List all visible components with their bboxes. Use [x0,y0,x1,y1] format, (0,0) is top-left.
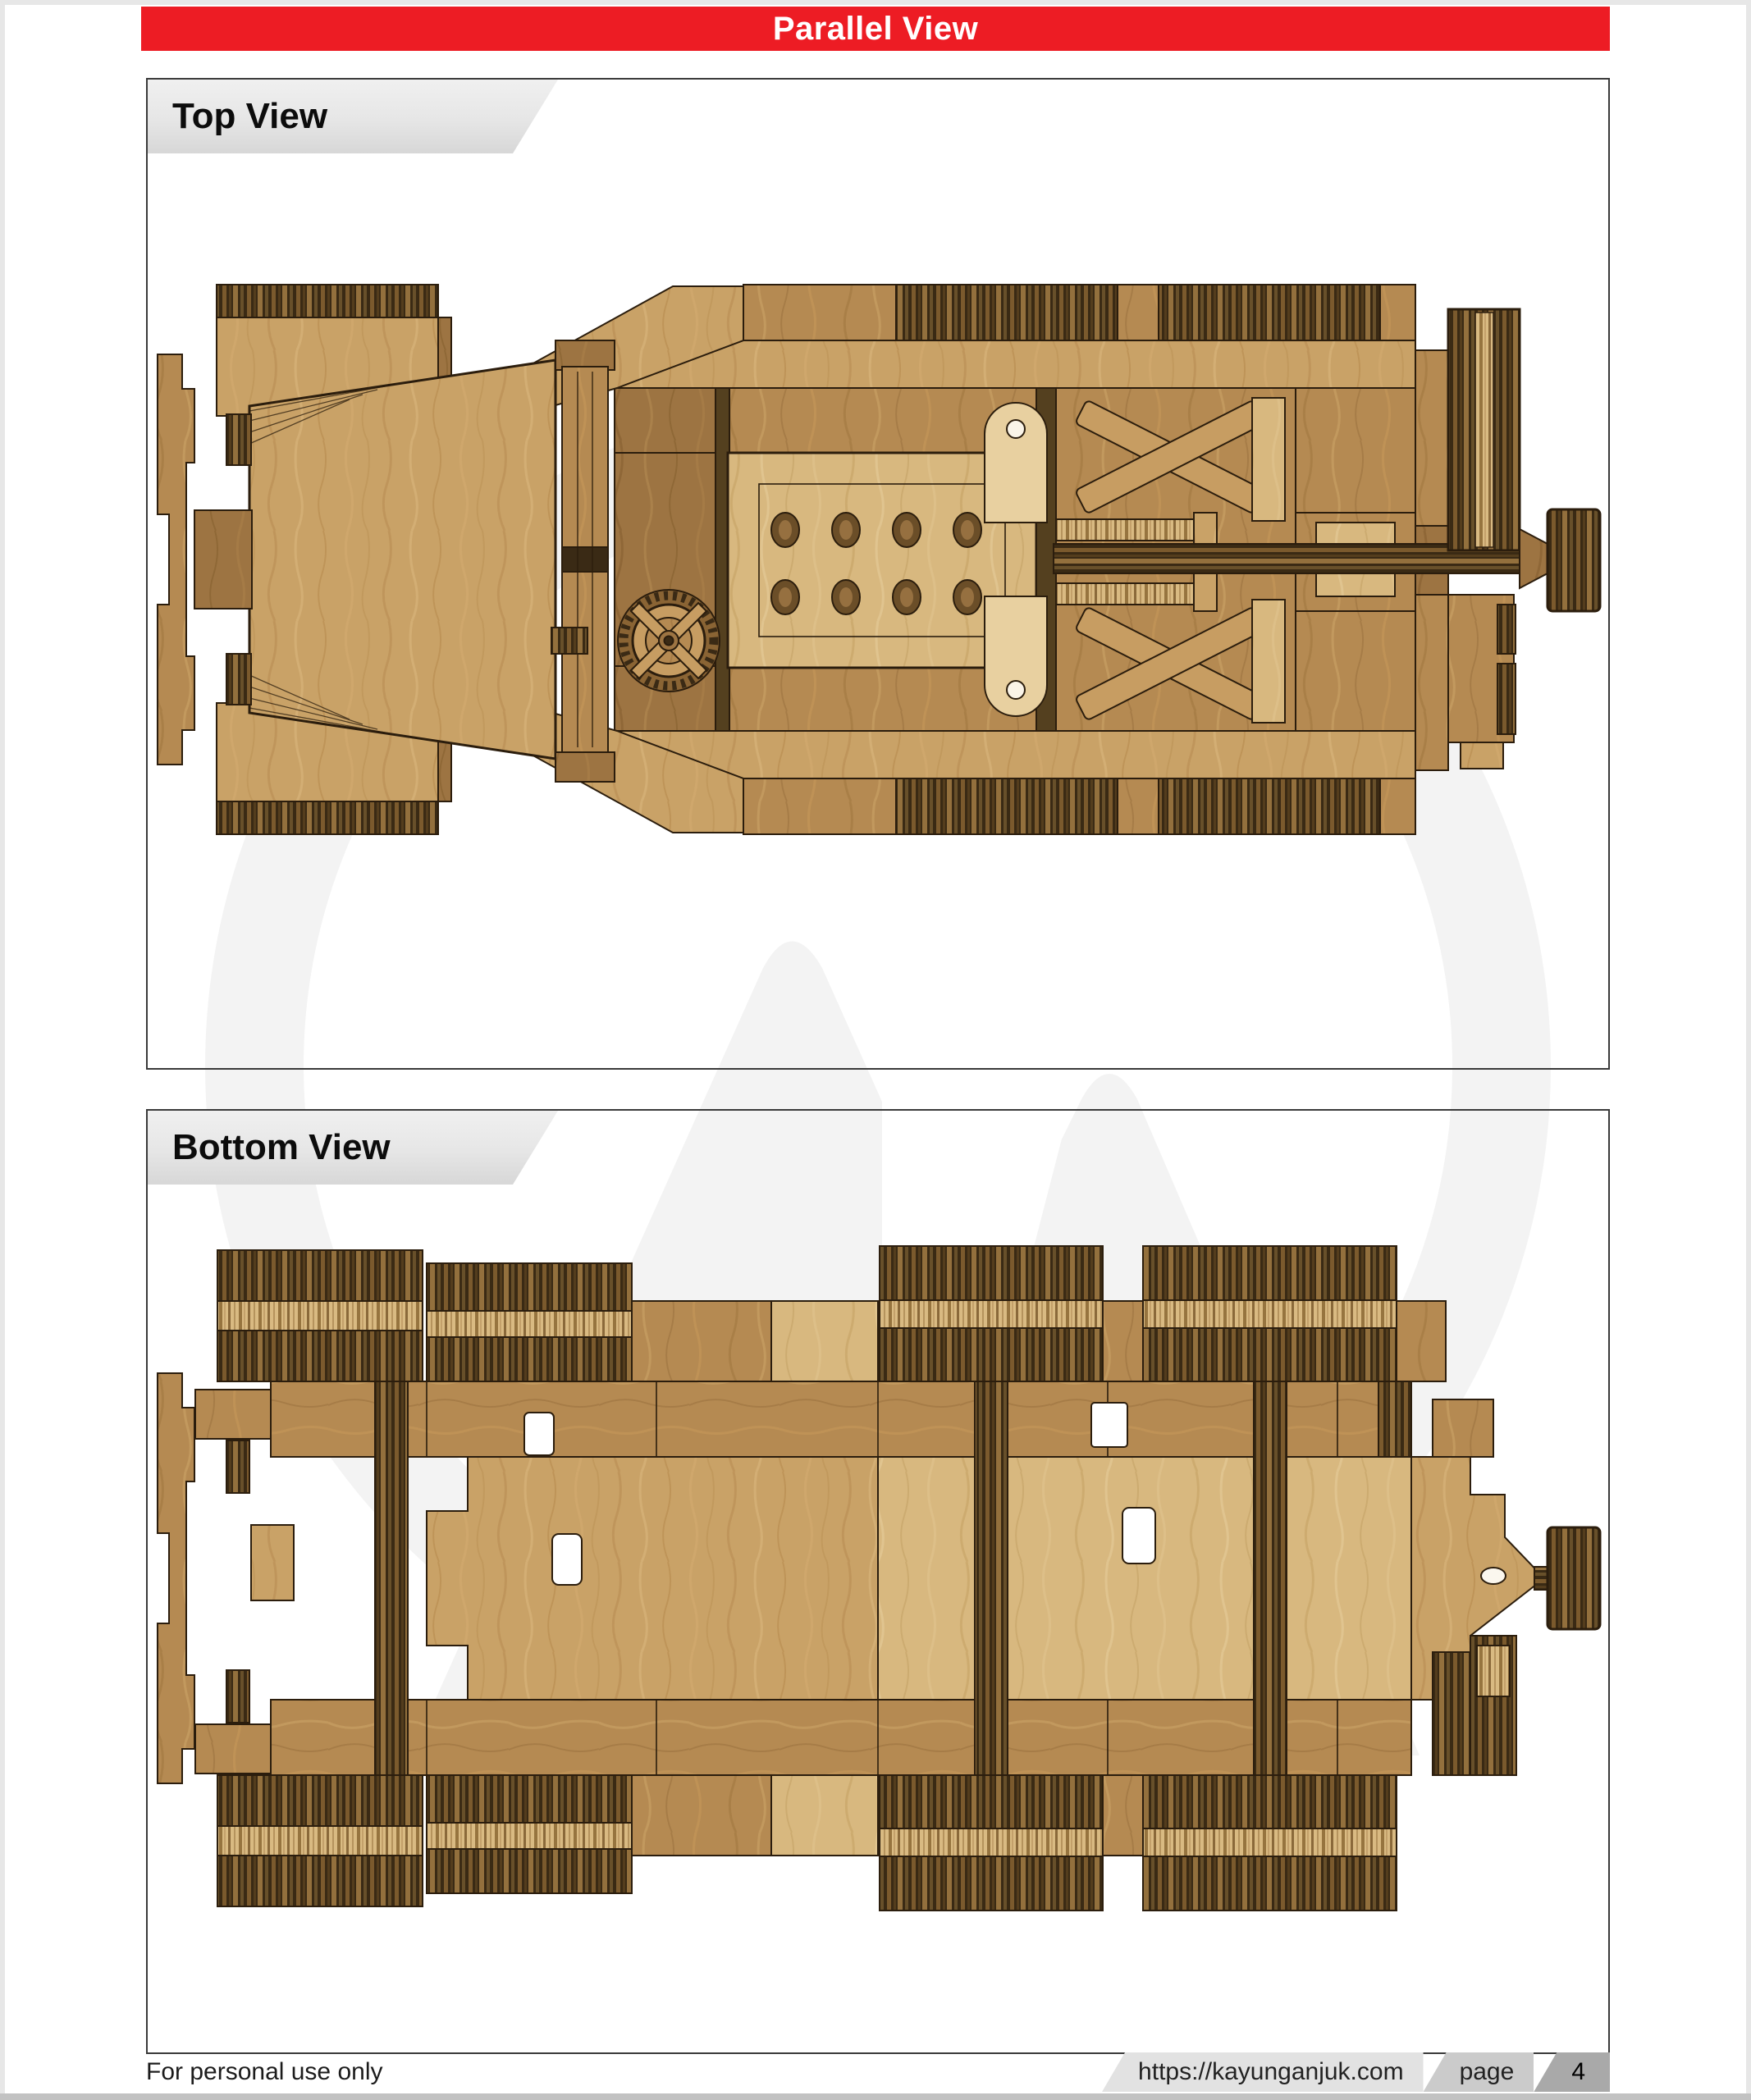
top-view-illustration [148,80,1608,1068]
footer-page-info: https://kayunganjuk.com page 4 [1102,2052,1610,2092]
drive-gear [1448,309,1520,550]
footer: For personal use only https://kayunganju… [146,2052,1610,2092]
panel-bottom-view: Bottom View [146,1109,1610,2054]
panel-label-top-view: Top View [148,80,558,153]
hood [249,360,555,759]
front-wheel-top [217,1250,632,1381]
rear-hitch [1448,595,1516,769]
rear-floor-plate [878,1457,1411,1700]
front-wheel-bottom [217,1775,632,1906]
windshield-frame [555,340,615,782]
front-bumper [158,354,252,765]
panel-top-view: Top View [146,78,1610,1070]
footer-page-label: page [1424,2052,1534,2092]
footer-usage-note: For personal use only [146,2052,383,2092]
panel-label-text: Bottom View [148,1127,391,1168]
front-floor-plate [427,1457,878,1700]
panel-label-bottom-view: Bottom View [148,1111,558,1185]
page-title: Parallel View [773,11,978,48]
page-bottom-edge [0,2093,1751,2100]
header-banner: Parallel View [141,7,1610,51]
bottom-view-illustration [148,1111,1608,2052]
crank-handle [1534,1527,1600,1629]
footer-page-number: 4 [1534,2052,1610,2092]
footer-site-url: https://kayunganjuk.com [1102,2052,1424,2092]
panel-label-text: Top View [148,96,327,137]
crank-handle [1520,509,1600,611]
